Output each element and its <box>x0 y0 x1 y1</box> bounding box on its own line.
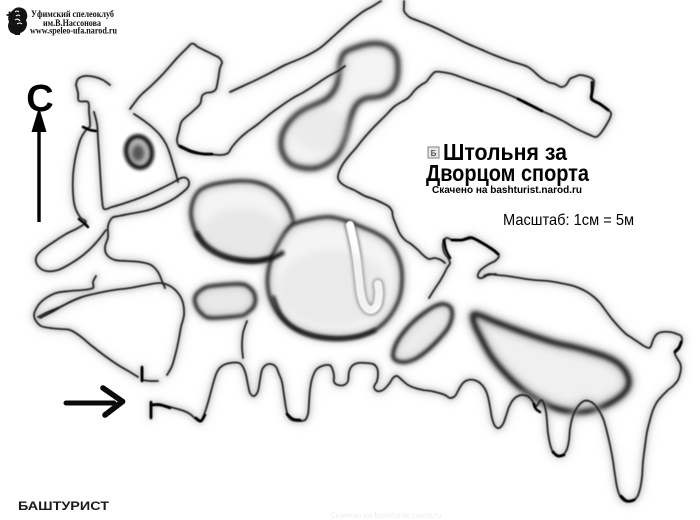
svg-text:Масштаб: 1см = 5м: Масштаб: 1см = 5м <box>503 212 634 229</box>
svg-text:Б: Б <box>431 149 437 158</box>
svg-text:Скачено на bashturist.narod.ru: Скачено на bashturist.narod.ru <box>330 511 441 520</box>
svg-text:www.speleo-ufa.narod.ru: www.speleo-ufa.narod.ru <box>30 27 118 37</box>
svg-text:БАШТУРИСТ: БАШТУРИСТ <box>18 499 110 513</box>
svg-text:Скачено на bashturist.narod.ru: Скачено на bashturist.narod.ru <box>432 184 582 196</box>
svg-text:Дворцом спорта: Дворцом спорта <box>426 160 589 186</box>
